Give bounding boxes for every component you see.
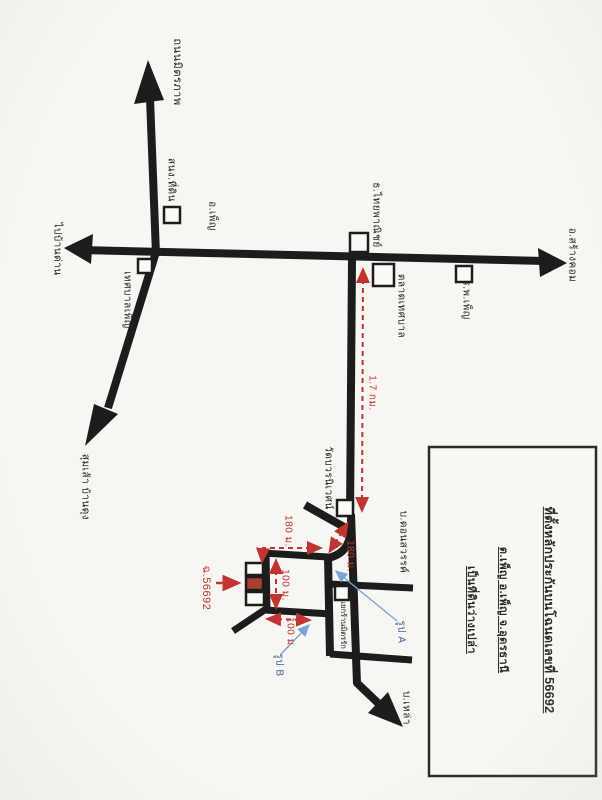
road-block-left xyxy=(266,550,267,612)
label-to-sang-khom: อ.สร้างคอม xyxy=(567,228,578,283)
parcel-box-neighbor-bottom xyxy=(246,592,264,605)
info-landtype-line: เป็นที่ดินว่างเปล่า xyxy=(465,566,477,654)
label-bank: ธ.ไทยพาณิชย์ xyxy=(371,182,382,248)
route-main-dashed xyxy=(362,270,363,510)
label-distance-100m-south: 100 ม. xyxy=(285,617,296,649)
label-to-sumsao: สุมเส้า บ้านดุง xyxy=(80,454,91,520)
landmark-box-bank xyxy=(350,233,368,252)
label-market: ตลาดเทศบาล xyxy=(396,274,407,338)
label-distance-1-7km: 1.7 กม. xyxy=(367,375,378,411)
label-distance-100m-north: 100 ม. xyxy=(280,569,291,601)
arrowhead-southwest xyxy=(85,404,118,446)
label-deed-number: ฉ.56692 xyxy=(200,566,212,611)
landmark-box-land-office xyxy=(164,207,180,223)
label-road-north: ถนนมิตรภาพ xyxy=(171,38,183,105)
info-box-frame xyxy=(429,447,596,776)
arrowhead-west xyxy=(64,234,93,264)
landmark-box-junction-shop xyxy=(335,586,349,600)
road-temple xyxy=(350,259,352,517)
label-land-office: สนง.ที่ดิน xyxy=(166,158,177,202)
parcel-box-neighbor-top xyxy=(246,563,263,575)
arrowhead-east xyxy=(538,248,567,277)
map-drawing xyxy=(0,0,602,800)
label-distance-180m-curve: 180 ม. xyxy=(345,540,356,572)
road-cross-lower xyxy=(330,654,412,660)
label-distance-180m-west: 180 ม. xyxy=(283,515,294,547)
label-junction-shop: แยกร้านมิตรรัก xyxy=(339,599,347,649)
label-photo-b: รูป B xyxy=(274,653,285,676)
label-municipality: เทศบาลเพ็ญ xyxy=(122,271,133,328)
landmark-box-municipality xyxy=(138,259,152,273)
road-block-stub xyxy=(233,609,266,631)
landmark-box-market xyxy=(373,264,394,286)
info-title-line: ที่ตั้งหลักประกันบนโฉนดเลขที่ 56692 xyxy=(541,507,555,714)
arrowhead-north xyxy=(134,60,164,104)
label-ban-lao: บ.เหล่า xyxy=(401,691,412,725)
landmark-box-temple xyxy=(337,500,353,516)
scanned-map-page: ถนนมิตรภาพ สนง.ที่ดิน อ.เพ็ญ เทศบาลเพ็ญ … xyxy=(0,0,602,800)
road-north xyxy=(150,98,156,254)
label-photo-a: รูป A xyxy=(396,620,407,643)
road-village-exit xyxy=(356,682,379,704)
parcel-box-deed-56692 xyxy=(246,577,263,590)
label-hospital: ร.พ.เพ็ญ xyxy=(461,280,472,320)
label-don-sawan: บ.ดอนสวรรค์ xyxy=(398,511,409,574)
road-village-left xyxy=(328,556,330,656)
info-address-line: ต.เพ็ญ อ.เพ็ญ จ.อุดรธานี xyxy=(497,547,509,673)
road-block-top xyxy=(263,553,328,557)
label-to-ban-dan: ไปบ้านด่าน xyxy=(52,222,63,275)
label-temple: วัดบวรนิเวศน์ xyxy=(323,446,334,510)
road-block-bottom xyxy=(264,610,332,614)
label-district-office: อ.เพ็ญ xyxy=(207,201,218,231)
